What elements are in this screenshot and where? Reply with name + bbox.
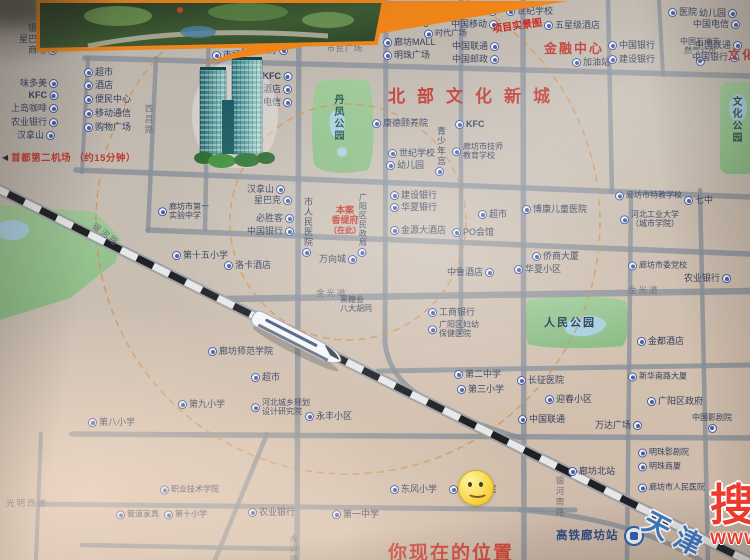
park-label-renmin: 人民公园 [544,314,596,330]
watermark-url: WWW [710,530,750,547]
airport-note-text: 首都第二机场 （约15分钟） [11,150,136,164]
district-title-culture-center: 文化中心 [728,46,750,63]
watermark: 搜 WWW [710,484,750,547]
district-title-north-culture-city: 北部文化新城 [388,82,562,107]
watermark-character: 搜 [710,484,750,528]
current-location-label: 你现在的位置 [388,538,514,560]
hsr-station-label: 高铁廊坊站 [556,527,619,543]
park-label-wenhua: 文化公园 [728,96,743,144]
park-label-danfeng: 丹凤公园 [330,94,345,142]
project-line2: 香缇府 [322,215,368,225]
project-photo-callout [28,0,576,78]
direction-tianjin-label: 天津 [637,500,717,560]
project-line3: （在此） [322,226,368,235]
airport-arrow-icon: ◀ [2,153,8,162]
current-location-smiley-icon [458,470,494,506]
project-line1: 本案 [322,205,368,215]
airport-note: ◀ 首都第二机场 （约15分钟） [2,150,136,164]
project-location-label: 本案 香缇府 （在此） [322,205,368,235]
map-annotations: ★ 行政中心 市民广场 金融中心 北部文化新城 文化中心 ◀ 首都第二机场 （约… [0,0,750,560]
map-photo: 银行星巴克商场世纪华联超市超市便民中心市场超市酒店味多美KFC上岛咖啡农业银行汉… [0,0,750,560]
